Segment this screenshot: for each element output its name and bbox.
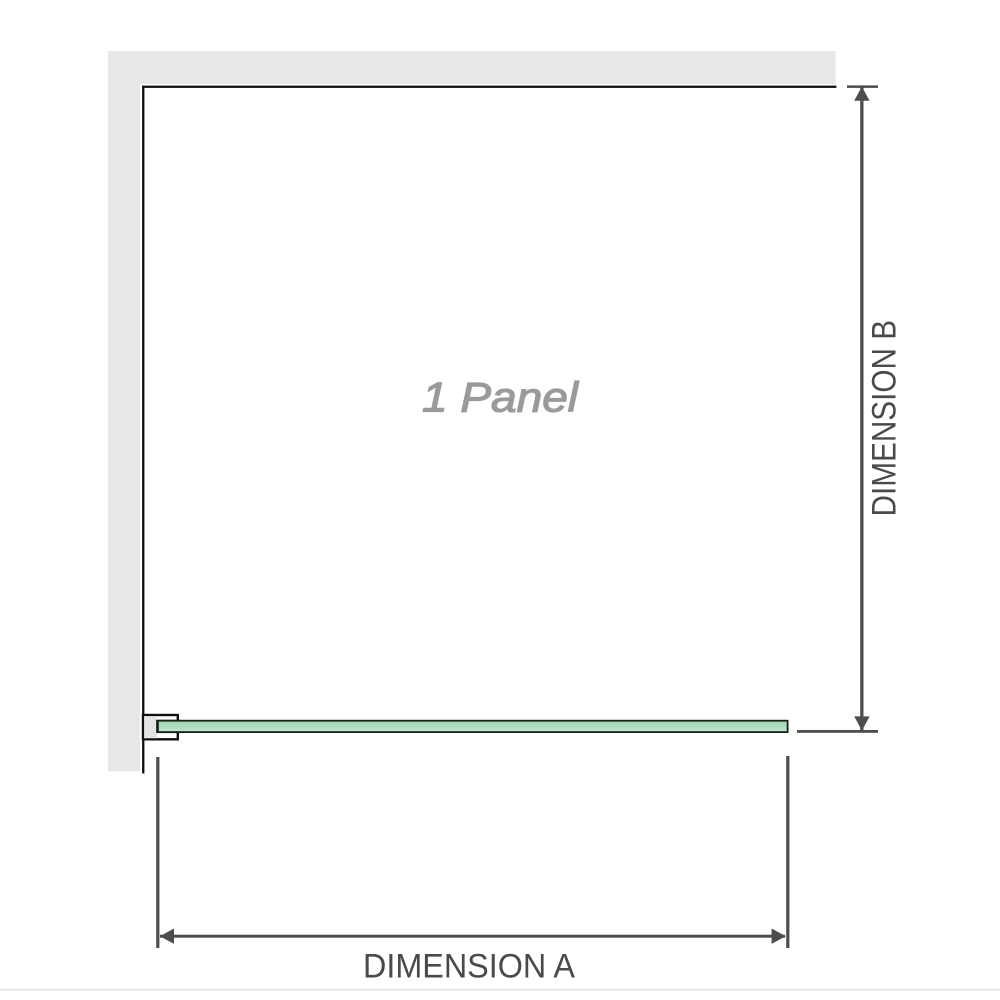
svg-text:DIMENSION B: DIMENSION B — [865, 320, 903, 517]
svg-text:DIMENSION A: DIMENSION A — [363, 948, 575, 986]
svg-text:1 Panel: 1 Panel — [422, 374, 580, 421]
